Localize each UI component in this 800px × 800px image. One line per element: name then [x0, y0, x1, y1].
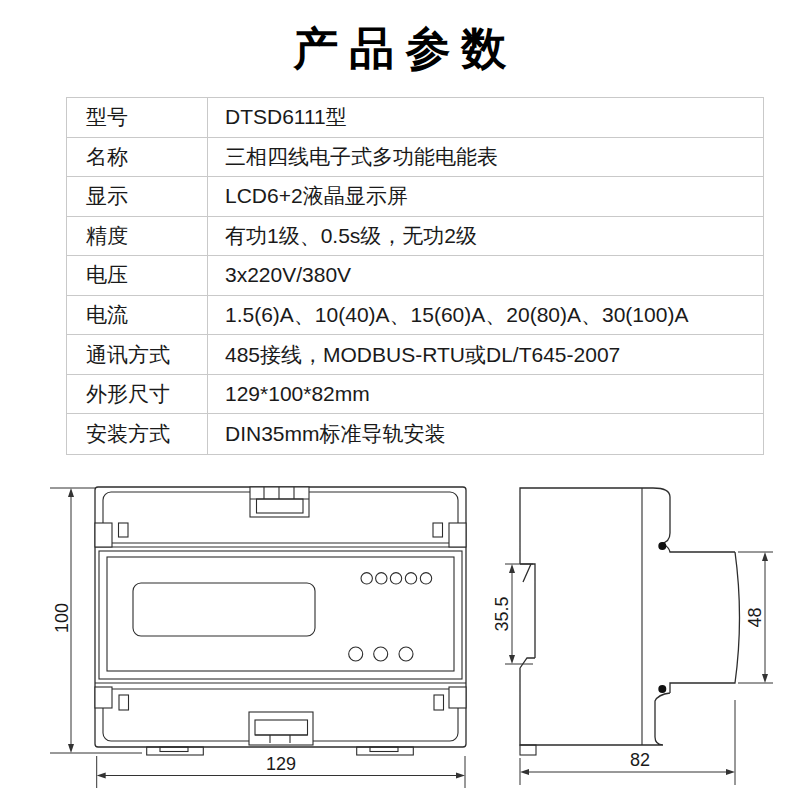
spec-row-label: 精度: [67, 217, 208, 257]
front-view-drawing: [95, 487, 466, 755]
face-bezel-inner: [107, 557, 454, 671]
side-rail-dimension-label: 35.5: [492, 596, 512, 631]
spec-row-value: LCD6+2液晶显示屏: [208, 177, 763, 217]
screw-hole: [434, 695, 444, 710]
meter-side-body: [520, 488, 740, 745]
spec-row-label: 电压: [67, 256, 208, 296]
top-seal-clip: [250, 487, 309, 517]
case-ear: [95, 687, 112, 708]
bottom-seal-clip: [249, 712, 313, 745]
front-width-dimension-label: 129: [266, 754, 296, 774]
spec-row-label: 电流: [67, 296, 208, 336]
screw-hole: [119, 523, 129, 537]
spec-row-label: 通讯方式: [67, 335, 208, 375]
spec-row-label: 外形尺寸: [67, 375, 208, 415]
case-ear: [95, 523, 112, 547]
side-screw-dot: [658, 685, 666, 693]
side-face-dimension-label: 48: [745, 607, 765, 627]
side-view-drawing: [520, 488, 740, 755]
side-depth-dimension-label: 82: [630, 750, 650, 770]
screw-hole: [433, 523, 443, 537]
spec-row-label: 型号: [67, 98, 208, 138]
spec-row-label: 名称: [67, 138, 208, 178]
spec-row-value: 有功1级、0.5s级，无功2级: [208, 217, 763, 257]
spec-row-value: 129*100*82mm: [208, 375, 763, 415]
spec-row-value: 三相四线电子式多功能电能表: [208, 138, 763, 178]
spec-row-value: DIN35mm标准导轨安装: [208, 414, 763, 454]
product-spec-page: 产品参数 型号DTSD6111型名称三相四线电子式多功能电能表显示LCD6+2液…: [0, 0, 800, 800]
side-foot: [520, 745, 536, 755]
panel-buttons: [349, 647, 413, 661]
led-indicators: [361, 573, 432, 584]
spec-row-value: 485接线，MODBUS-RTU或DL/T645-2007: [208, 335, 763, 375]
dimension-drawings: 100 129: [0, 470, 800, 800]
spec-row-value: DTSD6111型: [208, 98, 763, 138]
case-ear: [449, 523, 466, 547]
lcd-screen: [133, 583, 315, 636]
side-screw-dot: [658, 542, 666, 550]
meter-front-body: [95, 487, 466, 747]
screw-hole: [119, 695, 129, 710]
front-height-dimension-label: 100: [52, 603, 72, 633]
spec-table: 型号DTSD6111型名称三相四线电子式多功能电能表显示LCD6+2液晶显示屏精…: [66, 97, 764, 455]
technical-drawing-svg: 100 129: [0, 470, 800, 800]
spec-row-value: 1.5(6)A、10(40)A、15(60)A、20(80)A、30(100)A: [208, 296, 763, 336]
spec-row-value: 3x220V/380V: [208, 256, 763, 296]
page-title: 产品参数: [0, 18, 800, 80]
case-ear: [449, 687, 466, 708]
spec-row-label: 显示: [67, 177, 208, 217]
spec-row-label: 安装方式: [67, 414, 208, 454]
face-bezel-outer: [99, 551, 462, 679]
